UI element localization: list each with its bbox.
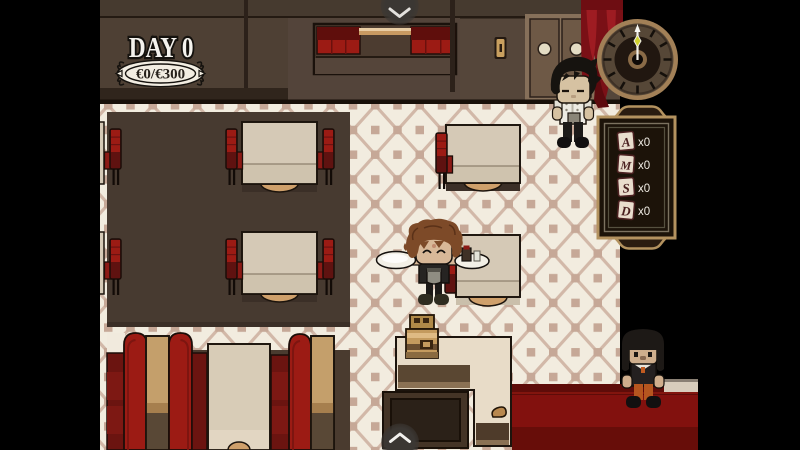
svg-text:A: A — [620, 134, 631, 150]
svg-text:x0: x0 — [638, 183, 650, 195]
svg-text:S: S — [622, 180, 630, 195]
svg-text:DAY 0: DAY 0 — [129, 32, 194, 64]
svg-text:D: D — [620, 203, 632, 219]
svg-text:€0/€300: €0/€300 — [136, 67, 185, 83]
svg-text:x0: x0 — [638, 160, 650, 172]
svg-text:x0: x0 — [638, 206, 650, 218]
svg-text:x0: x0 — [638, 137, 650, 149]
svg-text:M: M — [619, 158, 632, 173]
